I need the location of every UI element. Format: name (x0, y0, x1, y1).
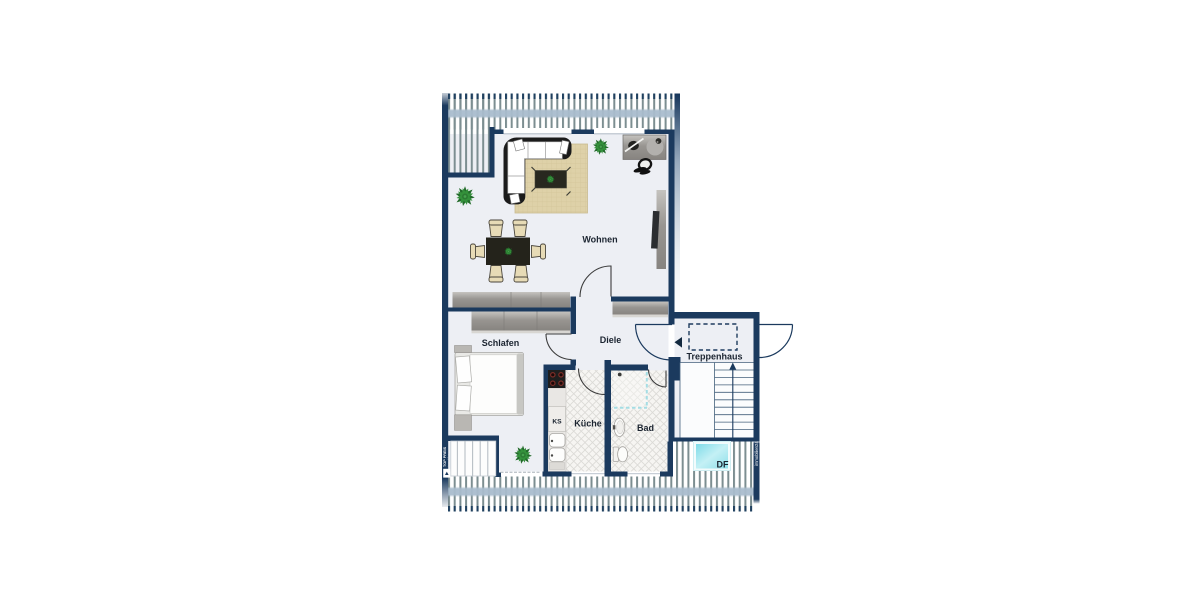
svg-text:Wohnen: Wohnen (582, 235, 617, 245)
svg-text:Schlafen: Schlafen (482, 338, 520, 348)
svg-text:KS: KS (552, 419, 562, 426)
svg-text:Treppenhaus: Treppenhaus (686, 352, 742, 362)
svg-text:Diele: Diele (600, 335, 622, 345)
svg-text:immobilien: immobilien (447, 453, 451, 467)
svg-text:immobilien24: immobilien24 (754, 441, 759, 466)
svg-text:Bad: Bad (637, 423, 654, 433)
svg-text:DF: DF (717, 460, 729, 470)
svg-text:Küche: Küche (574, 419, 602, 429)
